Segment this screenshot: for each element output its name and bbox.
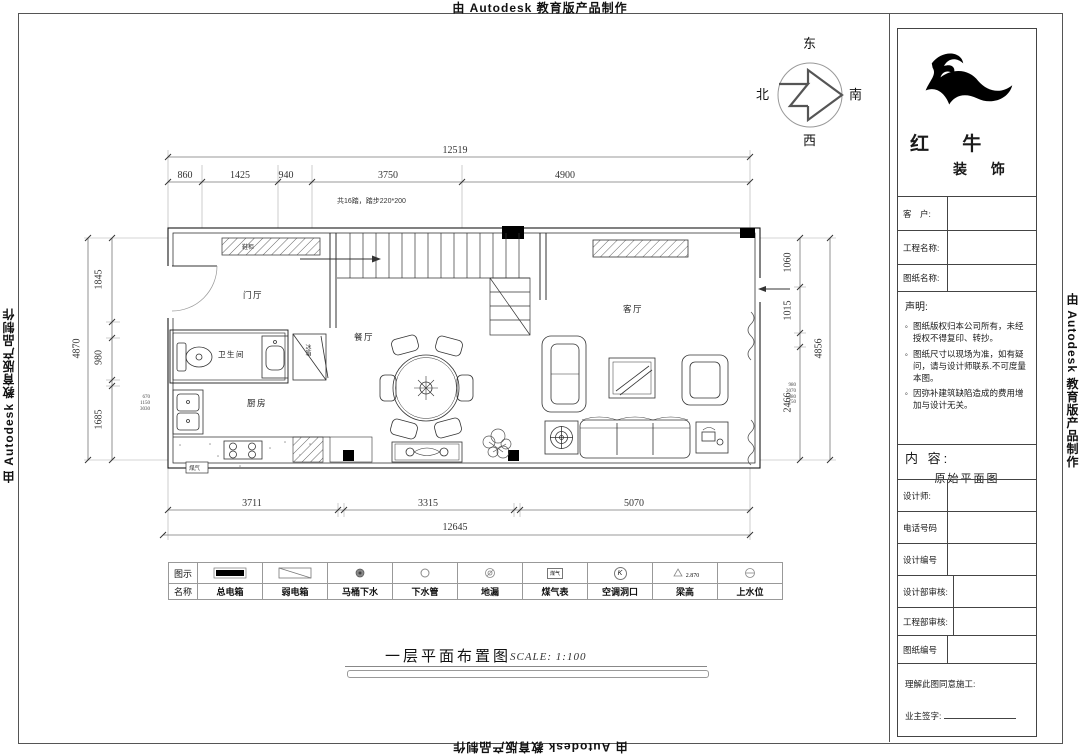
dim-left-1: 1845	[94, 262, 105, 298]
autodesk-banner-bottom: 由 Autodesk 教育版产品制作	[0, 739, 1080, 755]
legend-symbol-gas-meter-icon: 煤气	[522, 562, 587, 583]
legend-symbol-drain-pipe-icon	[392, 562, 457, 583]
fridge-label: 冰箱	[303, 344, 312, 356]
dim-right-1: 1060	[783, 244, 794, 282]
owner-signature-label: 业主签字:	[905, 711, 941, 721]
dim-left-2: 980	[94, 343, 105, 373]
legend-name-beam-height: 梁高	[652, 583, 717, 599]
room-label-living: 客厅	[623, 303, 643, 315]
room-label-foyer: 门厅	[243, 289, 263, 301]
legend-symbol-water-supply-icon	[717, 562, 782, 583]
brand-name-sub: 装 饰	[953, 159, 1015, 179]
sheet-scale: SCALE: 1:100	[510, 651, 586, 663]
customer-label: 客 户:	[898, 197, 948, 230]
legend-table: 图示 煤气 K 2.870 名称 总电箱 弱电箱	[168, 562, 783, 600]
statement-item: 。 图纸版权归本公司所有，未经授权不得复印、转抄。	[905, 321, 1030, 345]
legend-name-row-label: 名称	[168, 583, 197, 599]
drawing-name-label: 图纸名称:	[898, 265, 948, 291]
drawing-number-label: 图纸编号	[898, 636, 948, 663]
legend-name-toilet-drain: 马桶下水	[327, 583, 392, 599]
designer-row: 设计师:	[898, 479, 1036, 511]
legend-symbol-floor-drain-icon	[457, 562, 522, 583]
title-underline	[345, 666, 707, 667]
statement-title: 声明:	[905, 298, 1030, 313]
gas-meter-label: 煤气	[189, 464, 200, 472]
compass-west-label: 西	[803, 130, 816, 149]
drawing-name-row: 图纸名称:	[898, 264, 1036, 291]
title-block: 红 牛 装 饰 客 户: 工程名称: 图纸名称: 声明: 。 图纸版权归本公司所…	[897, 28, 1037, 737]
gas-meter-symbol-text: 煤气	[547, 568, 563, 579]
drawing-number-row: 图纸编号	[898, 635, 1036, 663]
dim-left-small: 670 1150 3030	[128, 395, 150, 412]
project-name-label: 工程名称:	[898, 231, 948, 264]
dim-right-small: 980 2070 680 150	[778, 383, 796, 406]
room-label-dining: 餐厅	[354, 331, 374, 343]
bullet-icon: 。	[905, 349, 913, 385]
legend-symbol-weak-electric-box-icon	[262, 562, 327, 583]
dim-bottom-total: 12645	[425, 522, 485, 533]
company-logo-area: 红 牛 装 饰	[898, 29, 1036, 196]
legend-symbol-row-label: 图示	[168, 562, 197, 583]
statement-item: 。 因弥补建筑缺陷造成的费用增加与设计无关。	[905, 388, 1030, 412]
agree-construction-label: 理解此图同意施工:	[905, 678, 1030, 690]
legend-name-water-supply: 上水位	[717, 583, 782, 599]
legend-symbol-main-electric-box-icon	[197, 562, 262, 583]
dim-bottom-1: 3711	[228, 498, 276, 509]
legend-symbol-ac-hole-icon: K	[587, 562, 652, 583]
signature-section: 理解此图同意施工: 业主签字:	[898, 663, 1036, 736]
statement-item: 。 图纸尺寸以现场为准，如有疑问，请与设计师联系.不可度量本图。	[905, 349, 1030, 385]
legend-symbol-beam-height-icon: 2.870	[652, 562, 717, 583]
legend-name-gas-meter: 煤气表	[522, 583, 587, 599]
beam-height-value: 2.870	[686, 573, 700, 579]
dim-top-2: 1425	[217, 170, 263, 181]
title-block-column-line	[889, 13, 890, 742]
dim-bottom-2: 3315	[404, 498, 452, 509]
autodesk-banner-right: 由 Autodesk 教育版产品制作	[1065, 293, 1080, 508]
phone-row: 电话号码	[898, 511, 1036, 543]
dim-top-total: 12519	[425, 145, 485, 156]
designer-label: 设计师:	[898, 480, 948, 511]
dim-right-total: 4856	[814, 329, 825, 369]
compass-arrow-icon	[779, 70, 842, 120]
brand-name-cn: 红 牛	[910, 129, 995, 156]
scale-bar	[347, 670, 709, 678]
dim-left-3: 1685	[94, 402, 105, 438]
drawing-sheet: 由 Autodesk 教育版产品制作 由 Autodesk 教育版产品制作 由 …	[0, 0, 1080, 755]
ac-hole-symbol-letter: K	[614, 567, 627, 580]
legend-name-main-electric-box: 总电箱	[197, 583, 262, 599]
owner-signature-line: 业主签字:	[905, 710, 1030, 722]
bullet-icon: 。	[905, 321, 913, 345]
legend-symbol-toilet-drain-icon	[327, 562, 392, 583]
dim-top-5: 4900	[540, 170, 590, 181]
room-label-bath: 卫生间	[218, 349, 245, 360]
dim-top-3: 940	[265, 170, 307, 181]
compass-south-label: 南	[849, 84, 862, 103]
dim-top-1: 860	[165, 170, 205, 181]
room-label-kitchen: 厨房	[247, 397, 267, 409]
legend-name-drain-pipe: 下水管	[392, 583, 457, 599]
legend-name-floor-drain: 地漏	[457, 583, 522, 599]
legend-name-ac-hole: 空调洞口	[587, 583, 652, 599]
phone-label: 电话号码	[898, 512, 948, 543]
dim-right-2: 1015	[783, 292, 794, 330]
signature-input-line[interactable]	[944, 710, 1016, 719]
content-section: 内 容: 原始平面图	[898, 444, 1036, 479]
design-number-row: 设计编号	[898, 543, 1036, 575]
bull-logo-icon	[916, 41, 1021, 126]
compass-east-label: 东	[803, 33, 816, 52]
engineering-review-row: 工程部审核:	[898, 607, 1036, 635]
autodesk-banner-left: 由 Autodesk 教育版产品制作	[0, 283, 16, 483]
design-review-label: 设计部审核:	[898, 576, 954, 607]
bullet-icon: 。	[905, 388, 913, 412]
compass-north-label: 北	[756, 84, 769, 103]
design-review-row: 设计部审核:	[898, 575, 1036, 607]
dim-top-4: 3750	[364, 170, 412, 181]
engineering-review-label: 工程部审核:	[898, 608, 954, 635]
customer-row: 客 户:	[898, 196, 1036, 230]
content-label: 内 容:	[898, 445, 1036, 467]
legend-name-weak-electric-box: 弱电箱	[262, 583, 327, 599]
project-row: 工程名称:	[898, 230, 1036, 264]
dim-left-total: 4870	[72, 329, 83, 369]
shoe-cabinet-label: 鞋柜	[242, 242, 254, 251]
stair-note: 共16踏，踏步220*200	[337, 196, 406, 206]
sheet-title: 一层平面布置图	[385, 645, 511, 666]
dim-bottom-3: 5070	[608, 498, 660, 509]
design-number-label: 设计编号	[898, 544, 948, 575]
autodesk-banner-top: 由 Autodesk 教育版产品制作	[0, 0, 1080, 16]
statement-section: 声明: 。 图纸版权归本公司所有，未经授权不得复印、转抄。 。 图纸尺寸以现场为…	[898, 291, 1036, 444]
